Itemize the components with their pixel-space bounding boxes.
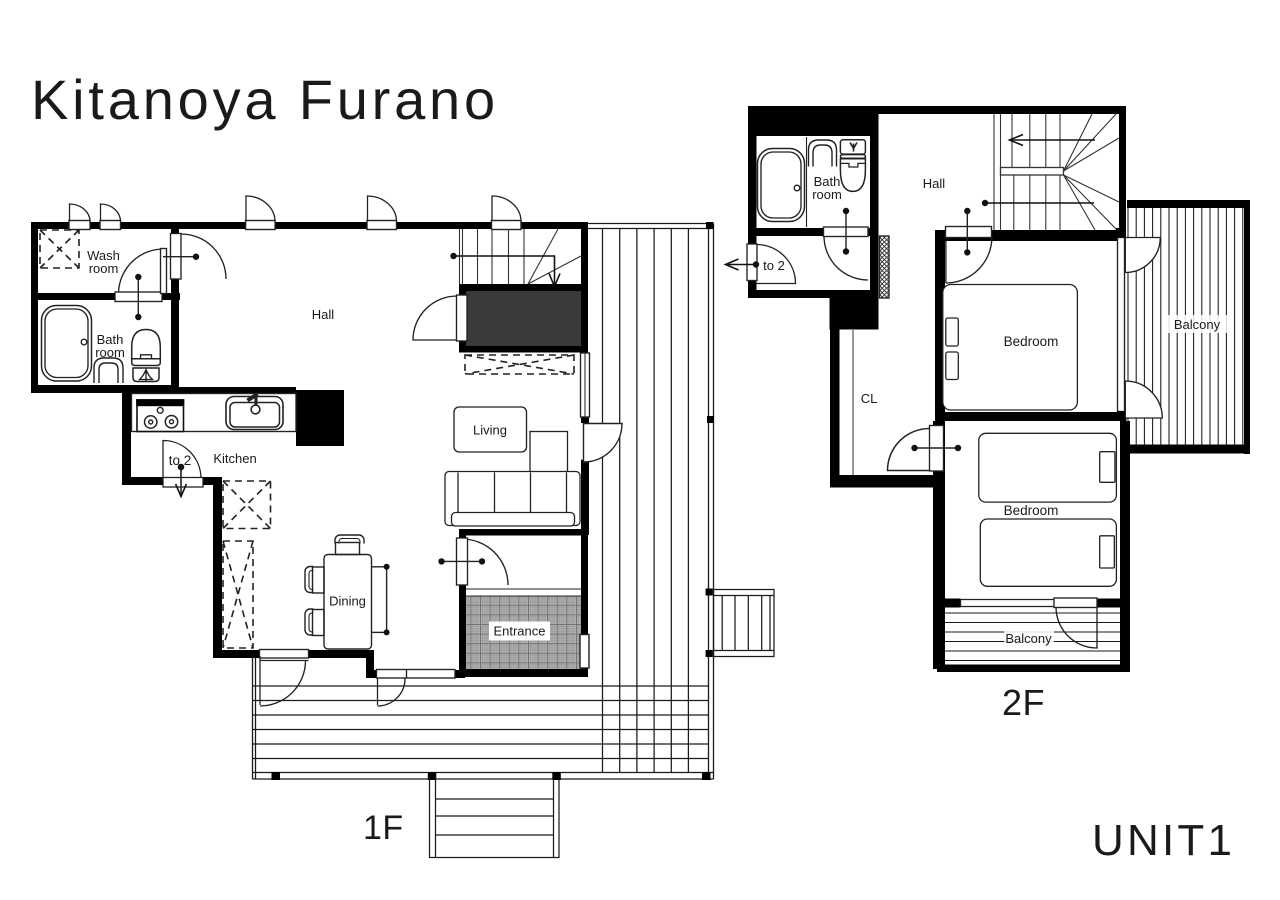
svg-text:Bedroom: Bedroom xyxy=(1004,334,1059,349)
svg-text:Dining: Dining xyxy=(329,594,366,609)
svg-text:CL: CL xyxy=(861,391,878,406)
svg-text:Balcony: Balcony xyxy=(1005,631,1052,646)
svg-text:Kitchen: Kitchen xyxy=(213,451,256,466)
svg-text:2F: 2F xyxy=(1002,682,1045,723)
svg-text:1F: 1F xyxy=(363,809,404,847)
svg-text:to 2: to 2 xyxy=(169,453,192,468)
svg-text:room: room xyxy=(89,261,119,276)
svg-text:Kitanoya Furano: Kitanoya Furano xyxy=(31,68,499,131)
svg-text:Hall: Hall xyxy=(923,176,946,191)
svg-text:Entrance: Entrance xyxy=(493,624,545,639)
svg-text:to 2: to 2 xyxy=(763,258,785,273)
svg-text:UNIT1: UNIT1 xyxy=(1092,816,1235,865)
svg-text:Balcony: Balcony xyxy=(1174,317,1221,332)
svg-text:room: room xyxy=(812,187,842,202)
svg-text:Hall: Hall xyxy=(312,307,335,322)
svg-text:Living: Living xyxy=(473,423,507,438)
svg-text:Bedroom: Bedroom xyxy=(1004,503,1059,518)
